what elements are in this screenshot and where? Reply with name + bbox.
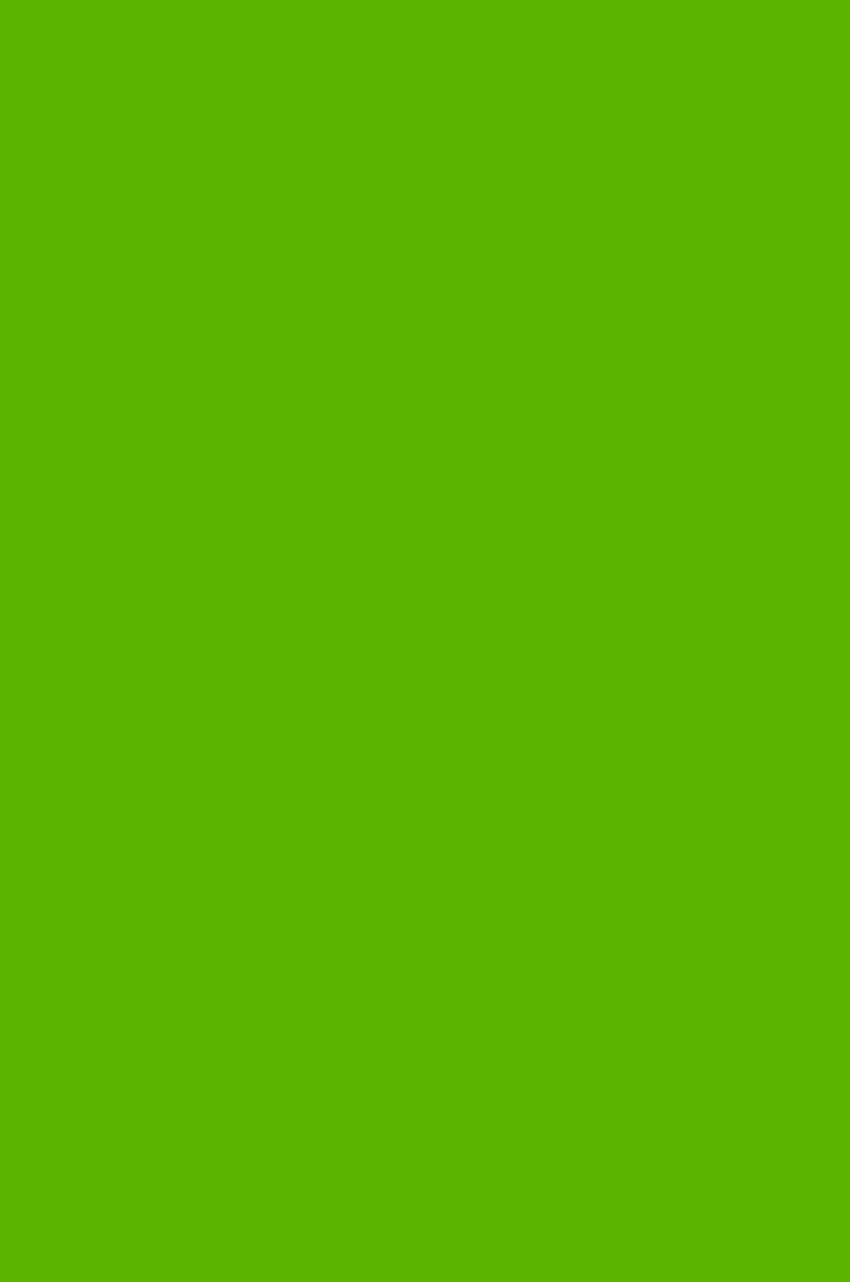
solid-green-background (0, 0, 850, 1282)
